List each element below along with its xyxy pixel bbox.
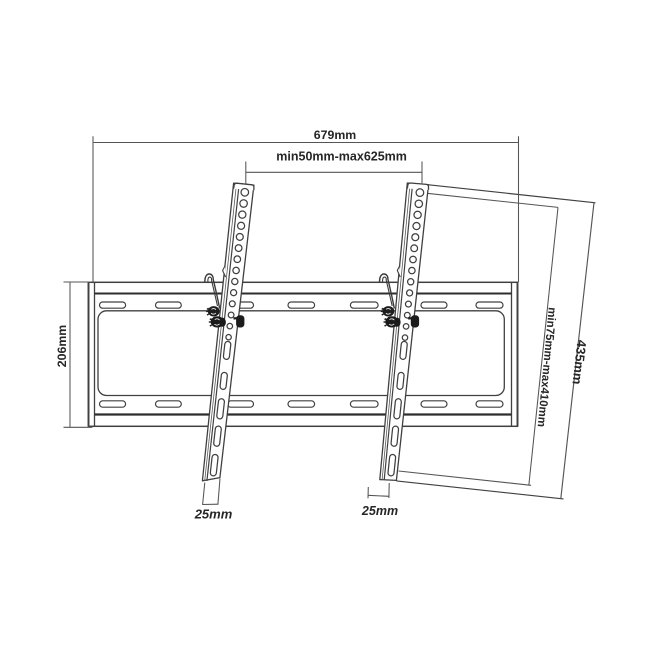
svg-text:25mm: 25mm — [194, 507, 233, 522]
svg-text:min50mm-max625mm: min50mm-max625mm — [276, 149, 407, 163]
svg-text:25mm: 25mm — [361, 504, 398, 518]
svg-text:206mm: 206mm — [55, 325, 69, 367]
svg-text:679mm: 679mm — [314, 128, 356, 142]
